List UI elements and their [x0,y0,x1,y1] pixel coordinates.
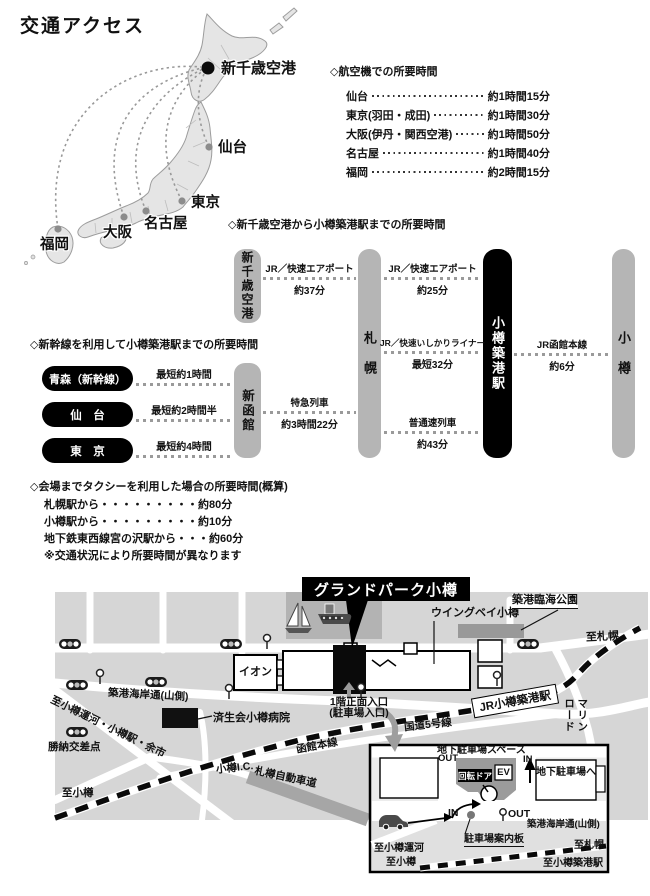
flight-city: 東京(羽田・成田) [346,107,430,123]
shinkansen-route-tokyo: 最短約4時間 [136,438,232,458]
flight-city: 大阪(伊丹・関西空港) [346,126,452,142]
dotted-leader [372,171,484,173]
city-label-sendai: 仙台 [218,140,247,157]
inset-building-right [536,760,596,800]
taxi-section-title: ◇会場までタクシーを利用した場合の所要時間(概算) [30,481,288,494]
route-line-name: JR／快速エアポート [388,261,476,275]
route-airport-2: JR／快速エアポート 約25分 [384,261,481,297]
hospital-building [162,708,198,728]
access-page: 交通アクセス 新千歳空港 仙台 東京 名古屋 大阪 福岡 ◇航空機での所要時間 … [0,0,650,896]
to-parking-label: 地下駐車場へ [536,767,596,779]
route-line-name: JR／快速いしかりライナー [380,337,485,349]
island-ne-2 [283,8,297,21]
flight-city: 福岡 [346,164,368,180]
station-label: 新函館 [238,389,257,433]
traffic-light-icon [59,639,81,649]
hospital-label: 済生会小樽病院 [213,712,290,725]
inset-in-top: IN [523,755,533,766]
inset-street [372,801,606,821]
mall-main-building [283,651,470,690]
flight-time: 約2時間15分 [488,164,550,180]
dotted-route-line [384,277,481,280]
entrance-label-2: (駐車場入口) [318,707,400,719]
dotted-route-line [136,419,232,422]
inset-in-bottom: IN [448,807,459,819]
taxi-line-otaru: 小樽駅から・・・・・・・・・約10分 [44,516,232,529]
shinkansen-pill-sendai: 仙 台 [42,402,133,427]
to-otaru-label: 至小樽 [62,787,94,799]
inset-to-sapporo: 至札幌 [574,840,604,852]
dotted-leader [434,114,483,116]
airport-label: 新千歳空港 [221,60,296,77]
route-local-train: 普通速列車 約43分 [384,415,481,451]
flight-row: 福岡 約2時間15分 [346,162,550,181]
flight-time: 約1時間40分 [488,145,550,161]
route-time: 約37分 [294,282,325,297]
wingbay-label: ウイングベイ小樽 [431,607,519,620]
hotel-banner: グランドパーク小樽 [302,577,470,601]
park-block [458,624,524,638]
airport-dot [202,62,215,75]
hokkaido-shape [188,14,267,101]
station-label: 小 樽 [614,331,633,376]
sign-label: 駐車場案内板 [464,834,524,847]
inset-to-otaru: 至小樽 [386,857,416,869]
aeon-label: イオン [239,666,272,679]
route-airport-1: JR／快速エアポート 約37分 [263,261,356,297]
route-time: 約43分 [417,436,448,451]
revolving-door-label: 回転ドア [458,769,492,782]
dotted-leader [372,95,484,97]
route-time: 最短約1時間 [156,366,212,381]
ev-label: EV [495,765,512,780]
station-label: 新千歳空港 [239,251,256,321]
shinkansen-section-title: ◇新幹線を利用して小樽築港駅までの所要時間 [30,339,258,352]
traffic-light-icon [517,639,539,649]
flight-row: 仙台 約1時間15分 [346,86,550,105]
flight-time: 約1時間30分 [488,107,550,123]
dotted-route-line [514,353,610,356]
traffic-light-icon [66,727,88,737]
traffic-light-icon [220,639,242,649]
inset-kaigandori-label: 築港海岸通(山側) [527,820,600,831]
dotted-route-line [136,455,232,458]
marine-road-label: マリン ロード [562,698,588,746]
city-label-fukuoka: 福岡 [40,237,69,254]
route-line-name: 普通速列車 [409,415,457,429]
dotted-route-line [384,431,481,434]
inset-to-canal: 至小樽運河 [374,843,424,855]
dotted-route-line [263,411,356,414]
flight-city: 名古屋 [346,145,379,161]
shinkansen-route-aomori: 最短約1時間 [136,366,232,386]
taxi-line-miyanosawa: 地下鉄東西線宮の沢駅から・・・約60分 [44,533,243,546]
inset-out-top: OUT [438,754,458,765]
station-label: 小樽築港駅 [488,316,507,391]
station-label: 札 幌 [360,331,379,376]
island-ne-1 [270,23,283,34]
route-ishikari-liner: JR／快速いしかりライナー 最短32分 [384,337,481,371]
station-label: 青森（新幹線） [49,371,126,387]
route-hakodate-main-line: JR函館本線 約6分 [514,337,610,373]
revolving-door-icon [481,786,497,802]
flight-table: 仙台 約1時間15分 東京(羽田・成田) 約1時間30分 大阪(伊丹・関西空港)… [346,86,550,181]
shinkansen-pill-aomori: 青森（新幹線） [42,366,133,391]
flight-city: 仙台 [346,88,368,104]
route-line-name: JR函館本線 [537,337,587,351]
flight-row: 大阪(伊丹・関西空港) 約1時間50分 [346,124,550,143]
inset-building-left [380,758,438,798]
route-time: 約6分 [549,358,575,373]
station-pill-sapporo: 札 幌 [358,249,381,458]
island-sw-2 [24,261,27,264]
station-pill-shin-hakodate: 新函館 [234,363,261,458]
route-time: 最短約2時間半 [151,402,217,417]
rail-section-title: ◇新千歳空港から小樽築港駅までの所要時間 [228,219,445,232]
shinkansen-route-sendai: 最短約2時間半 [136,402,232,422]
station-label: 仙 台 [70,407,105,423]
route-time: 約3時間22分 [281,416,338,431]
dotted-route-line [263,277,356,280]
dotted-route-line [384,351,481,354]
sign-dot [467,811,475,819]
dotted-leader [456,133,483,135]
island-sw-1 [31,255,35,259]
to-sapporo-label: 至札幌 [586,630,620,644]
route-line-name: JR／快速エアポート [265,261,353,275]
traffic-light-icon [145,677,167,687]
route-time: 最短約4時間 [156,438,212,453]
taxi-line-sapporo: 札幌駅から・・・・・・・・・約80分 [44,499,232,512]
shinkansen-pill-tokyo: 東 京 [42,438,133,463]
flight-time: 約1時間15分 [488,88,550,104]
city-label-nagoya: 名古屋 [144,216,188,233]
flight-row: 名古屋 約1時間40分 [346,143,550,162]
dotted-leader [383,152,484,154]
park-label: 築港臨海公園 [512,594,578,609]
route-time: 最短32分 [412,356,453,371]
route-time: 約25分 [417,282,448,297]
flight-time: 約1時間50分 [488,126,550,142]
katsunai-label: 勝納交差点 [48,741,101,753]
city-label-tokyo: 東京 [191,195,220,212]
route-ltd-express: 特急列車 約3時間22分 [263,395,356,431]
taxi-note: ※交通状況により所要時間が異なります [44,550,241,563]
route-line-name: 特急列車 [290,395,328,409]
traffic-light-icon [66,680,88,690]
station-pill-otaru: 小 樽 [612,249,635,458]
inset-to-station: 至小樽築港駅 [543,858,603,870]
station-pill-otaru-chikko: 小樽築港駅 [483,249,512,458]
station-label: 東 京 [70,443,105,459]
page-title: 交通アクセス [20,16,145,38]
station-pill-chitose: 新千歳空港 [234,249,261,323]
city-label-osaka: 大阪 [103,225,132,242]
dotted-route-line [136,383,232,386]
flight-section-title: ◇航空機での所要時間 [330,66,437,79]
flight-row: 東京(羽田・成田) 約1時間30分 [346,105,550,124]
